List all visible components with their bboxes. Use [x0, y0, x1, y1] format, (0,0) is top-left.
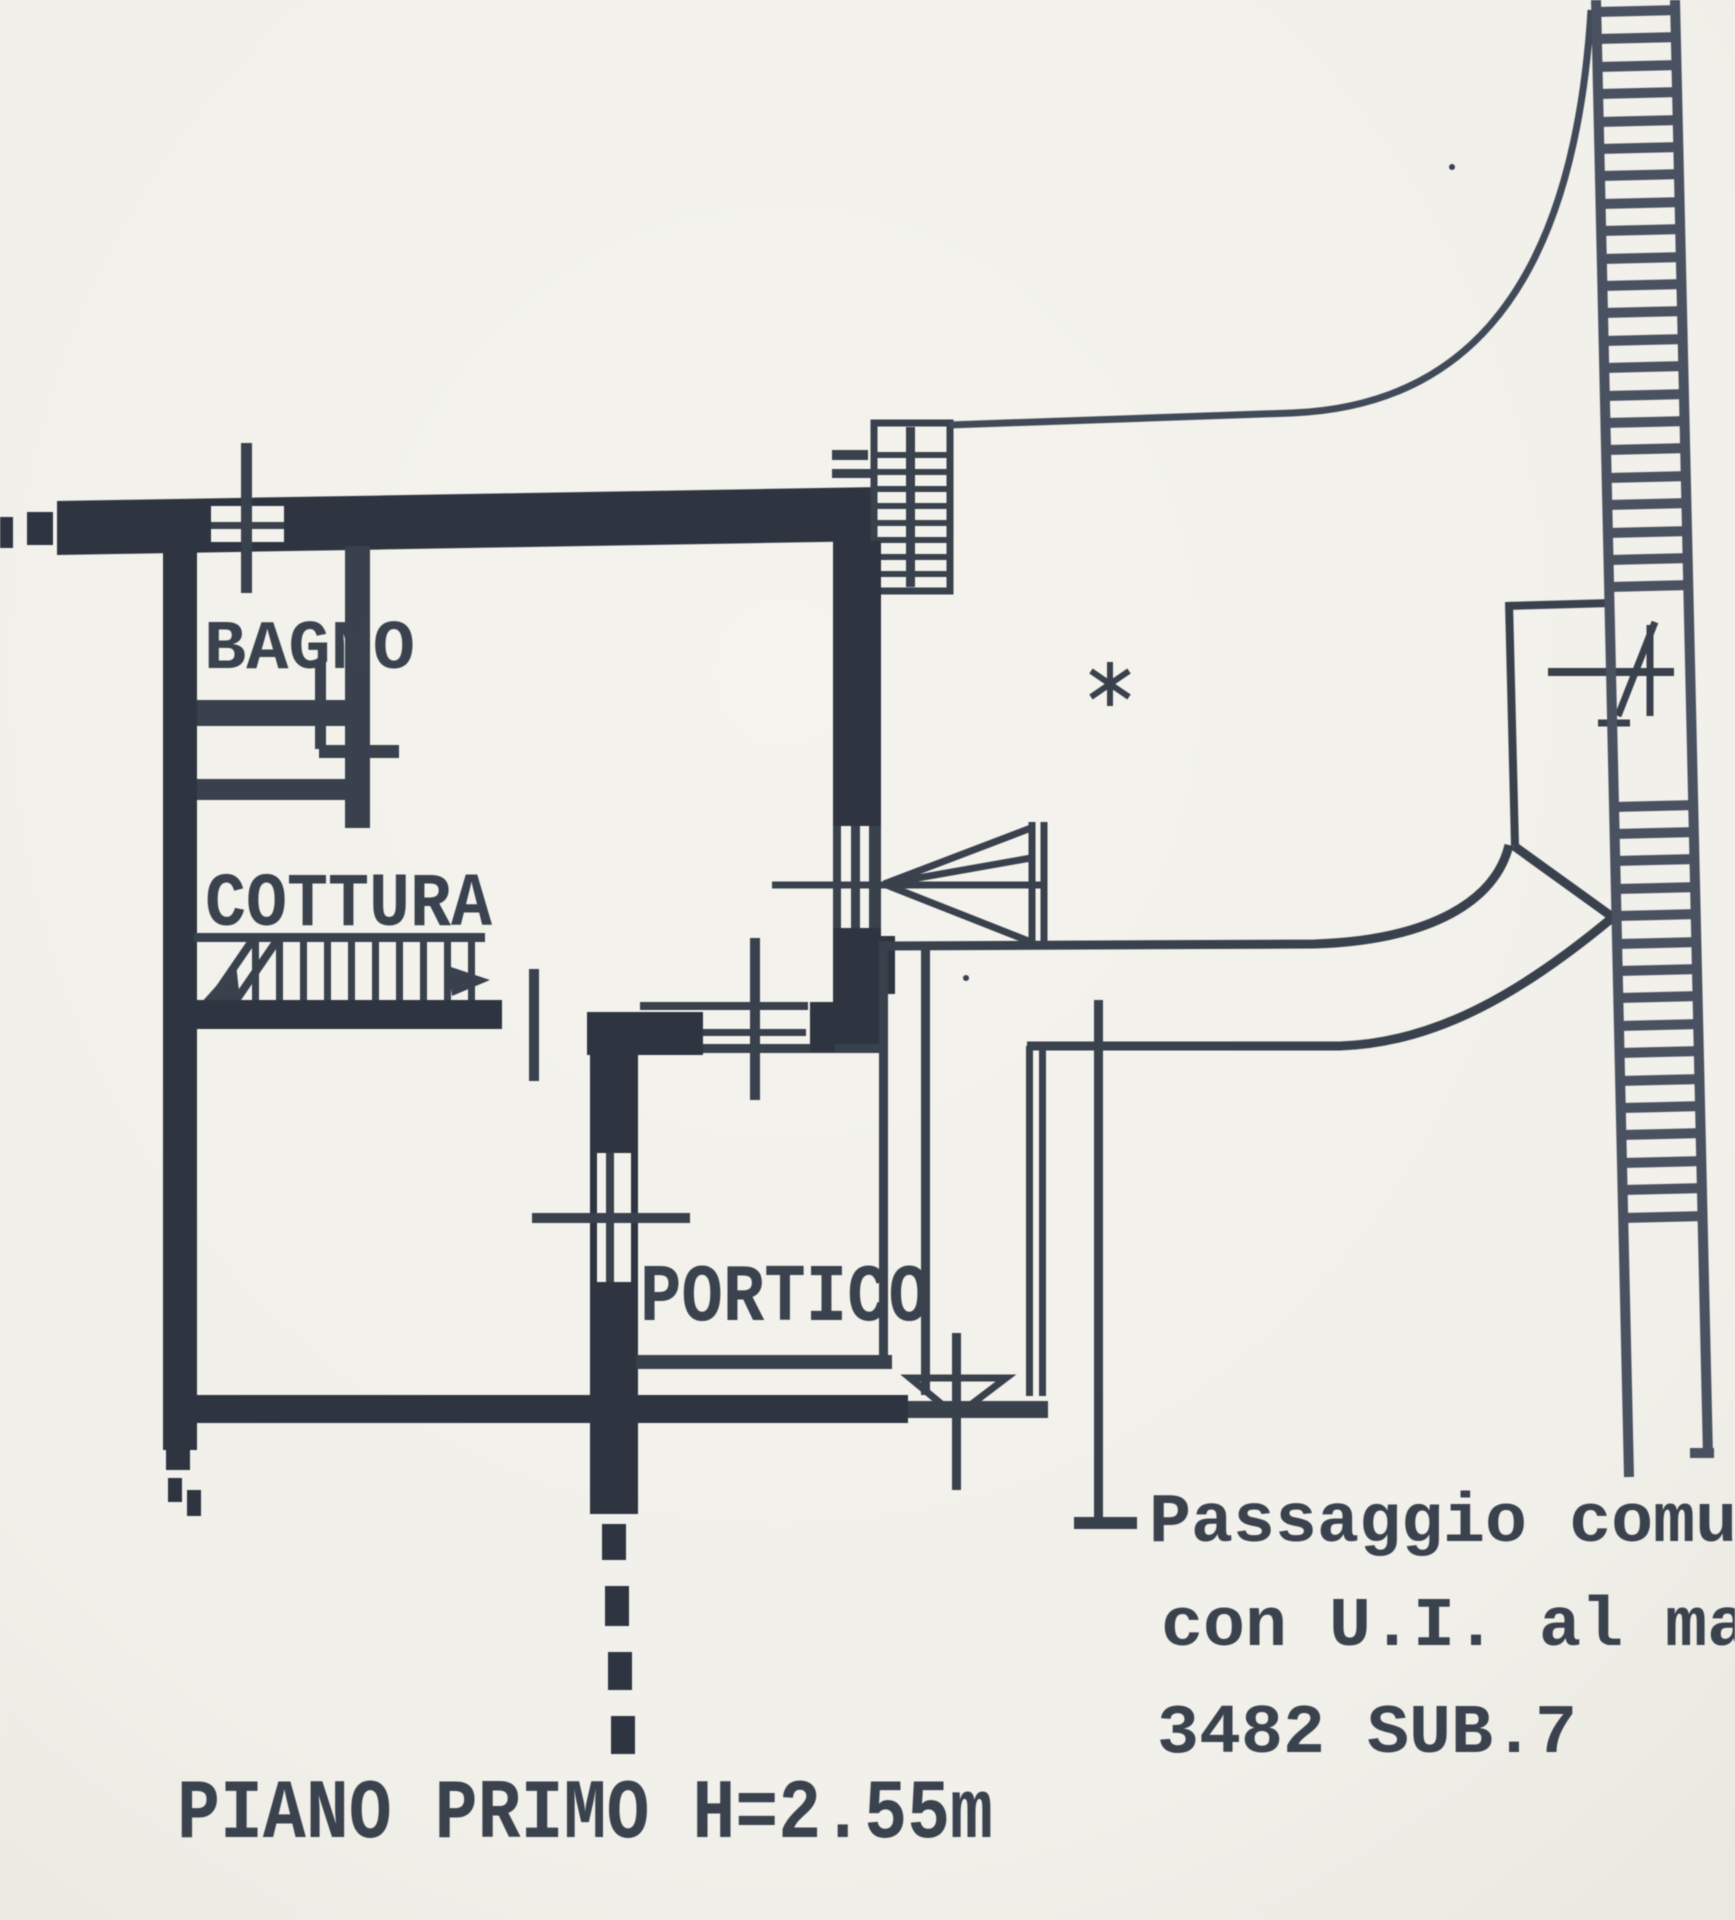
svg-text:PIANO PRIMO H=2.55m: PIANO PRIMO H=2.55m: [177, 1768, 993, 1863]
svg-text:BAGNO: BAGNO: [204, 611, 415, 690]
svg-text:con U.I. al ma: con U.I. al ma: [1161, 1588, 1735, 1667]
svg-text:Passaggio comu: Passaggio comu: [1149, 1484, 1735, 1563]
svg-text:3482 SUB.7: 3482 SUB.7: [1157, 1695, 1577, 1774]
